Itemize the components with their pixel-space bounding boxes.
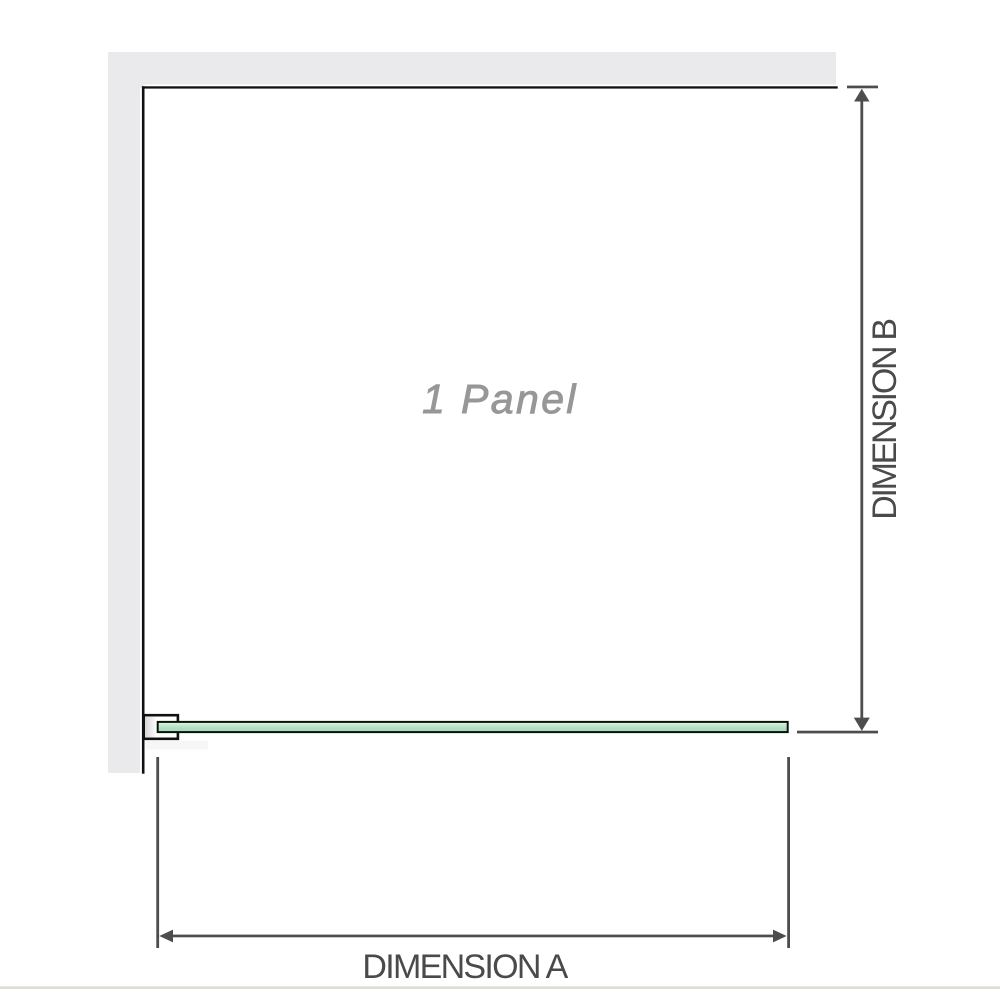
svg-text:DIMENSION A: DIMENSION A — [362, 948, 568, 986]
svg-text:1 Panel: 1 Panel — [422, 376, 578, 422]
svg-text:DIMENSION B: DIMENSION B — [866, 320, 904, 520]
